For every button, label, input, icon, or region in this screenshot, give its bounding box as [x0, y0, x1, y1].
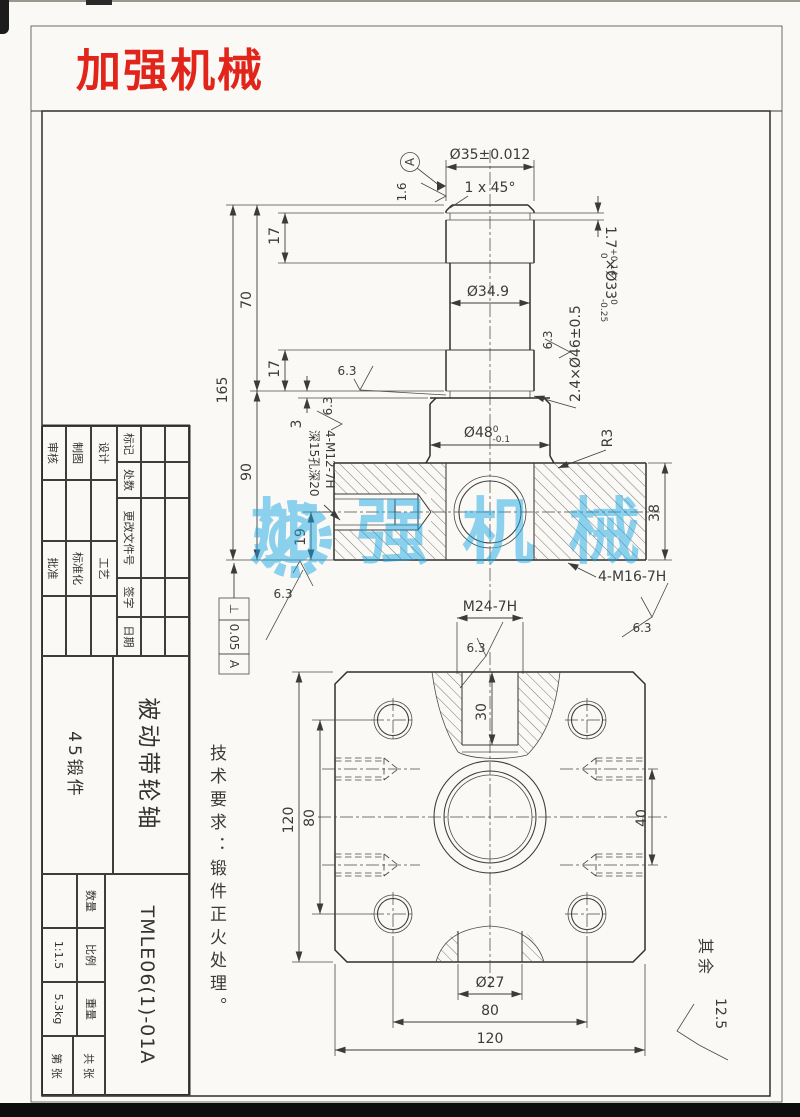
scan-artifact-bottom: [0, 1103, 800, 1117]
svg-text:4-M16-7H: 4-M16-7H: [598, 569, 666, 585]
sign-standard: 标准化: [66, 541, 91, 596]
svg-text:深15孔深20: 深15孔深20: [307, 430, 321, 497]
svg-text:4-M12-7H: 4-M12-7H: [323, 430, 337, 489]
sign-check: 审核: [41, 426, 66, 480]
svg-text:A: A: [227, 660, 241, 669]
svg-text:80: 80: [302, 809, 318, 827]
left-dim-chain: 165 70 90 17 17 3: [215, 205, 448, 560]
part-name: 被动带轮轴: [113, 656, 189, 874]
dim-40-right: 40: [634, 769, 652, 865]
plan-view: 30 120 80: [281, 652, 668, 1056]
svg-text:70: 70: [239, 291, 255, 309]
scale-label: 比例: [77, 928, 105, 982]
svg-text:120: 120: [281, 807, 297, 834]
svg-text:38: 38: [647, 504, 663, 522]
scale-value: 1:1.5: [41, 928, 77, 982]
svg-text:Ø34.9: Ø34.9: [467, 284, 509, 300]
note-groove-2_4: 2.4×Ø46±0.5 6.3: [534, 305, 584, 408]
roughness-6_3-bottom-left: 6.3: [266, 561, 313, 640]
svg-text:R3: R3: [600, 429, 616, 448]
note-m12: 4-M12-7H 深15孔深20 6.3: [307, 396, 342, 520]
svg-text:6.3: 6.3: [273, 587, 292, 601]
note-m16: 4-M16-7H 6.3: [568, 563, 668, 637]
broken-out-top: 30: [432, 672, 560, 758]
title-block-table: 标记 处数 更改文件号 签字 日期 设计 制图 审核 工艺 标准化 批准 被动带…: [42, 425, 190, 1095]
chamfer-note: 1 x 45°: [450, 180, 515, 208]
svg-text:40: 40: [634, 809, 650, 827]
svg-text:3: 3: [289, 420, 305, 429]
svg-text:80: 80: [481, 1003, 499, 1019]
svg-text:17: 17: [267, 227, 283, 245]
dim-19: 19: [293, 512, 334, 560]
drawing-number: TMLE06(1)-01A: [105, 874, 189, 1096]
title-block: 标记 处数 更改文件号 签字 日期 设计 制图 审核 工艺 标准化 批准 被动带…: [42, 425, 190, 1095]
svg-text:30: 30: [474, 703, 490, 721]
svg-text:6.3: 6.3: [466, 641, 485, 655]
weight-value: 5.3kg: [41, 982, 77, 1036]
svg-text:Ø27: Ø27: [476, 975, 505, 991]
material: 45锻件: [41, 656, 113, 874]
th-count: 处数: [117, 462, 141, 498]
dim-groove-1_7: 1.7+0.140×Ø330-0.25: [534, 196, 618, 322]
th-date: 日期: [117, 617, 141, 656]
svg-text:2.4×Ø46±0.5: 2.4×Ø46±0.5: [568, 305, 584, 402]
svg-text:1.7+0.140×Ø330-0.25: 1.7+0.140×Ø330-0.25: [598, 226, 618, 322]
note-r3: R3: [558, 429, 616, 468]
svg-text:⊥: ⊥: [227, 604, 241, 614]
sign-draw: 制图: [66, 426, 91, 480]
sheet-total: 共 张: [73, 1036, 105, 1096]
svg-text:A: A: [403, 157, 417, 166]
general-roughness-note: 其余 12.5: [677, 938, 728, 1060]
svg-text:120: 120: [477, 1031, 504, 1047]
svg-text:6.3: 6.3: [337, 364, 356, 378]
sheet-number: 第 张: [41, 1036, 73, 1096]
th-sign: 签字: [117, 578, 141, 617]
drawing-sheet: 加强机械 .ol{stroke:#2f2f2f;stroke-width:1.5…: [0, 0, 800, 1117]
front-view: Ø35±0.012 A 1.6 1 x 45°: [215, 147, 672, 688]
svg-text:1 x 45°: 1 x 45°: [465, 180, 516, 196]
svg-text:6.3: 6.3: [632, 621, 651, 635]
svg-text:1.6: 1.6: [395, 182, 409, 201]
th-docno: 更改文件号: [117, 498, 141, 578]
svg-text:Ø480-0.1: Ø480-0.1: [464, 425, 510, 445]
svg-text:17: 17: [267, 360, 283, 378]
svg-text:M24-7H: M24-7H: [463, 599, 517, 615]
svg-text:Ø35±0.012: Ø35±0.012: [450, 147, 531, 163]
th-mark: 标记: [117, 426, 141, 462]
svg-text:其余: 其余: [696, 938, 715, 978]
dim-38: 38: [647, 463, 672, 560]
tech-requirements-note: 技术要求：锻件正火处理。: [204, 744, 229, 1044]
weight-label: 重量: [77, 982, 105, 1036]
svg-text:6.3: 6.3: [321, 396, 335, 415]
gdt-frame: ⊥ 0.05 A: [219, 563, 249, 674]
svg-text:6.3: 6.3: [541, 330, 555, 349]
sign-design: 设计: [91, 426, 117, 480]
svg-text:0.05: 0.05: [227, 624, 241, 651]
svg-text:12.5: 12.5: [712, 998, 728, 1029]
svg-text:19: 19: [293, 528, 309, 546]
svg-text:90: 90: [239, 463, 255, 481]
qty-label: 数量: [77, 874, 105, 928]
sign-approve: 批准: [41, 541, 66, 596]
roughness-6_3-left: 6.3: [337, 364, 446, 395]
svg-text:165: 165: [215, 377, 231, 404]
sign-process: 工艺: [91, 541, 117, 596]
